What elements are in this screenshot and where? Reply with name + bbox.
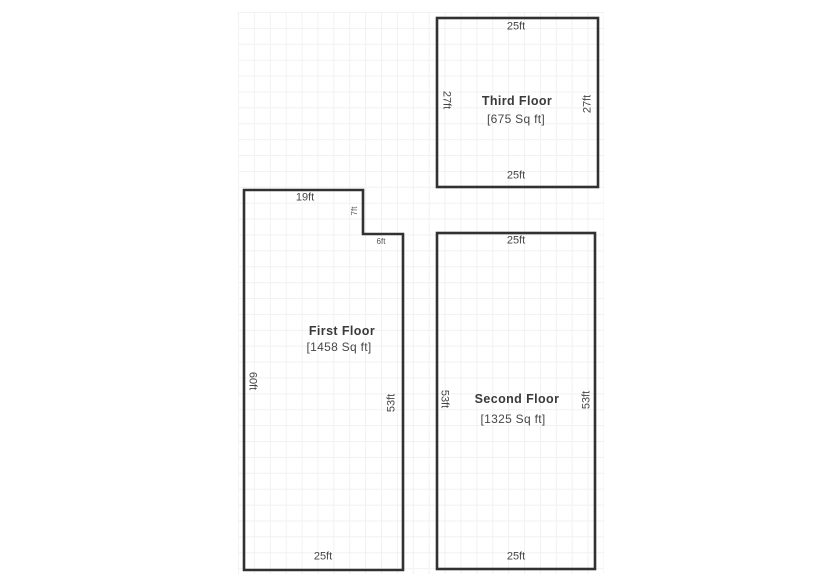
second-floor-area: [1325 Sq ft] <box>481 413 546 425</box>
third-floor-area: [675 Sq ft] <box>487 113 545 125</box>
first-floor-name: First Floor <box>309 325 375 338</box>
third-floor-left-dimension: 27ft <box>441 91 452 109</box>
first-floor-notch-height-dimension: 7ft <box>351 207 359 216</box>
second-floor-top-dimension: 25ft <box>507 236 525 247</box>
third-floor-top-dimension: 25ft <box>507 22 525 33</box>
second-floor-name: Second Floor <box>475 393 560 406</box>
second-floor-left-dimension: 53ft <box>439 390 450 408</box>
second-floor-bottom-dimension: 25ft <box>507 552 525 563</box>
first-floor-outline <box>244 190 403 570</box>
floor-outlines <box>0 0 840 588</box>
first-floor-left-dimension: 60ft <box>247 372 258 390</box>
first-floor-top-dimension: 19ft <box>296 193 314 204</box>
floorplan-canvas: 25ft 27ft 27ft Third Floor [675 Sq ft] 2… <box>0 0 840 588</box>
first-floor-bottom-dimension: 25ft <box>314 552 332 563</box>
first-floor-right-dimension: 53ft <box>387 394 398 412</box>
third-floor-bottom-dimension: 25ft <box>507 171 525 182</box>
third-floor-right-dimension: 27ft <box>583 95 594 113</box>
third-floor-name: Third Floor <box>482 95 552 108</box>
first-floor-area: [1458 Sq ft] <box>307 341 372 353</box>
second-floor-right-dimension: 53ft <box>582 391 593 409</box>
first-floor-notch-width-dimension: 6ft <box>377 238 386 246</box>
